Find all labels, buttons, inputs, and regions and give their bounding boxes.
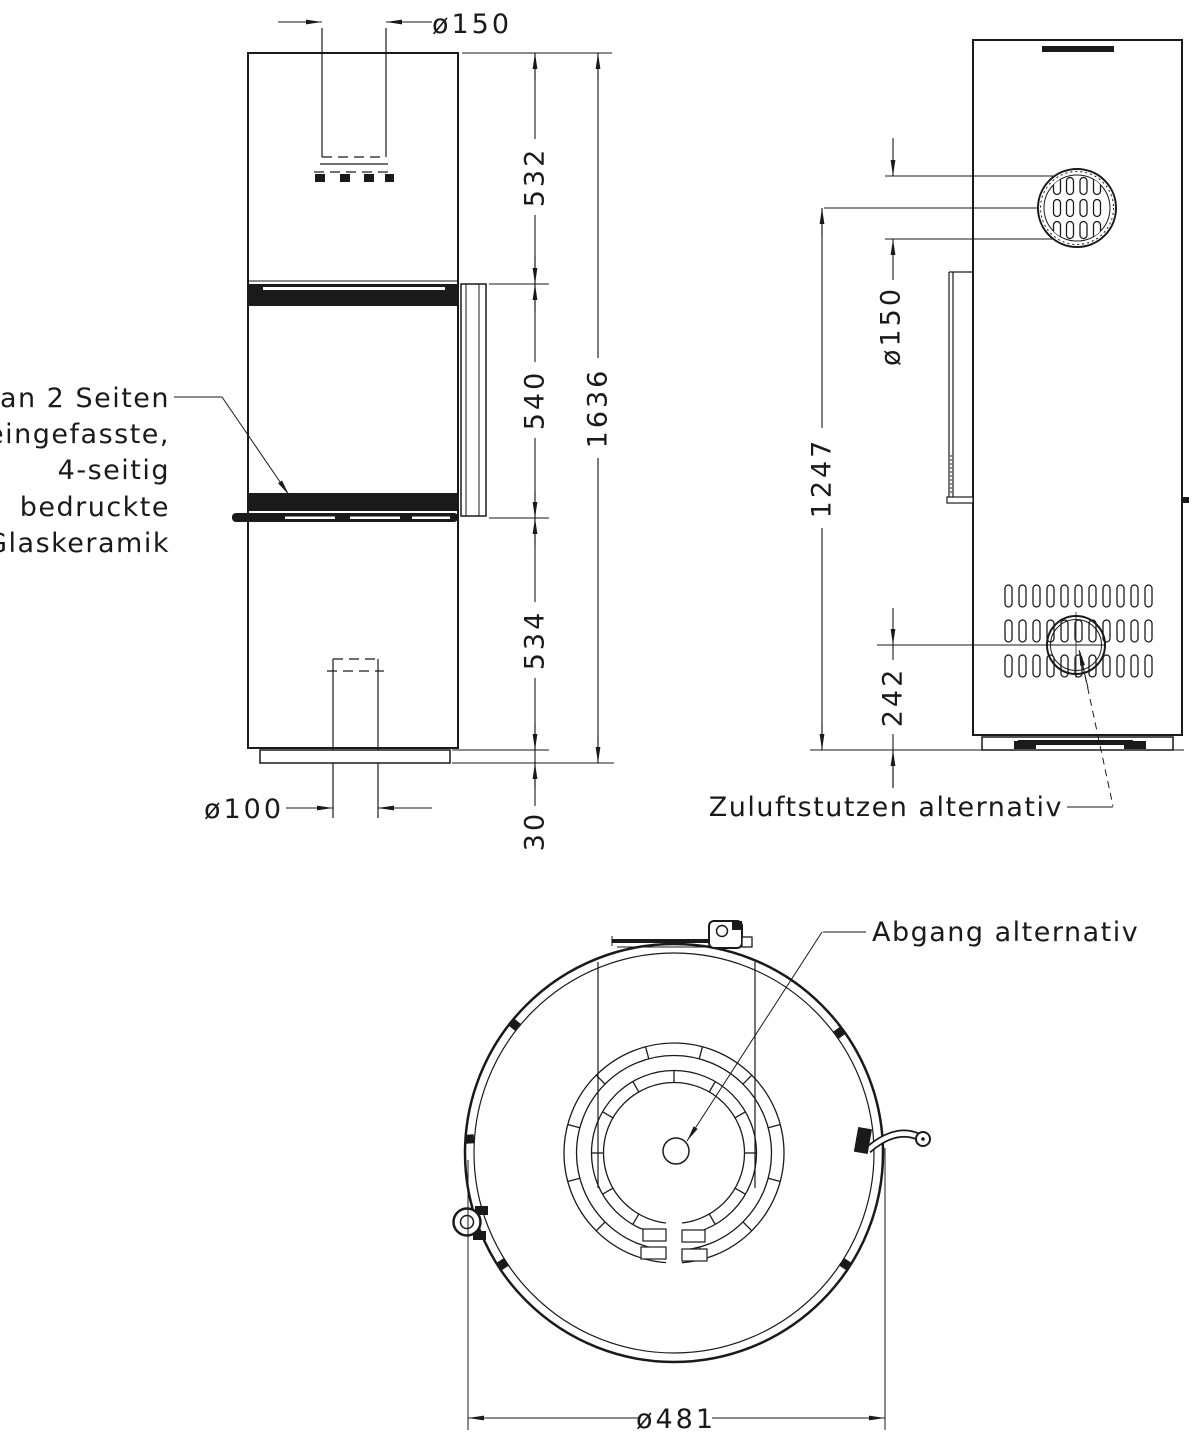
plinth-foot bbox=[1014, 741, 1036, 749]
dim-side-flue-axis-height: 1247 bbox=[807, 438, 838, 519]
dim-top-diameter: ø481 bbox=[636, 1404, 716, 1435]
dim-side-inlet-axis-height: 242 bbox=[878, 667, 909, 728]
glass-note: an 2 Seiten eingefasste, 4-seitig bedruc… bbox=[0, 383, 289, 559]
center-flue-opening bbox=[663, 1138, 689, 1164]
glass-note-line-4: bedruckte bbox=[20, 492, 170, 523]
brick-tab bbox=[682, 1249, 707, 1261]
brick-tab bbox=[641, 1247, 666, 1259]
dim-front-plinth-height: 30 bbox=[520, 811, 551, 851]
window-bottom-band bbox=[248, 493, 458, 511]
dim-front-air-inlet-diameter: ø100 bbox=[204, 794, 284, 825]
abgang-label: Abgang alternativ bbox=[872, 917, 1139, 948]
collar-clip bbox=[385, 174, 394, 182]
drawing-canvas: ø150 532 540 534 30 1636 ø100 bbox=[0, 0, 1200, 1449]
latch-stop bbox=[742, 937, 752, 947]
collar-clip bbox=[340, 174, 350, 182]
sill-highlight bbox=[412, 517, 450, 520]
front-view bbox=[232, 28, 486, 818]
plinth-foot bbox=[1124, 741, 1146, 749]
top-view: Abgang alternativ bbox=[454, 917, 1140, 1362]
sill-highlight bbox=[350, 517, 400, 520]
dim-front-flue-diameter: ø150 bbox=[432, 9, 512, 40]
latch-clip bbox=[732, 921, 742, 930]
dim-front-total-height: 1636 bbox=[583, 368, 614, 449]
collar-clip bbox=[315, 174, 325, 182]
glass-note-line-1: an 2 Seiten bbox=[0, 383, 170, 414]
brick-gap bbox=[666, 1218, 682, 1268]
brick-tab bbox=[682, 1230, 705, 1242]
top-vent-slot bbox=[1042, 46, 1114, 52]
door-handle-top bbox=[854, 1127, 930, 1154]
door-glass-panel bbox=[461, 284, 486, 516]
collar-clip bbox=[364, 174, 374, 182]
band-highlight bbox=[263, 287, 445, 290]
dim-front-upper-height: 532 bbox=[520, 147, 551, 208]
glass-note-line-2: eingefasste, bbox=[0, 419, 170, 450]
front-body bbox=[248, 53, 458, 748]
zuluft-label: Zuluftstutzen alternativ bbox=[709, 792, 1063, 823]
glass-note-line-3: 4-seitig bbox=[58, 455, 170, 486]
dim-side-rear-flue-diameter: ø150 bbox=[876, 286, 907, 366]
door-handle-side bbox=[1182, 497, 1189, 503]
sill-highlight bbox=[285, 517, 335, 520]
side-view bbox=[947, 40, 1189, 750]
rear-flue-outlet bbox=[1038, 169, 1116, 247]
dim-front-window-height: 540 bbox=[520, 370, 551, 431]
brick-tab bbox=[643, 1229, 666, 1241]
dim-front-lower-height: 534 bbox=[520, 610, 551, 671]
stove-dimension-drawing: ø150 532 540 534 30 1636 ø100 bbox=[0, 0, 1200, 1449]
front-plinth bbox=[260, 750, 450, 763]
side-door-foot bbox=[947, 497, 973, 503]
glass-note-line-5: Glaskeramik bbox=[0, 528, 170, 559]
